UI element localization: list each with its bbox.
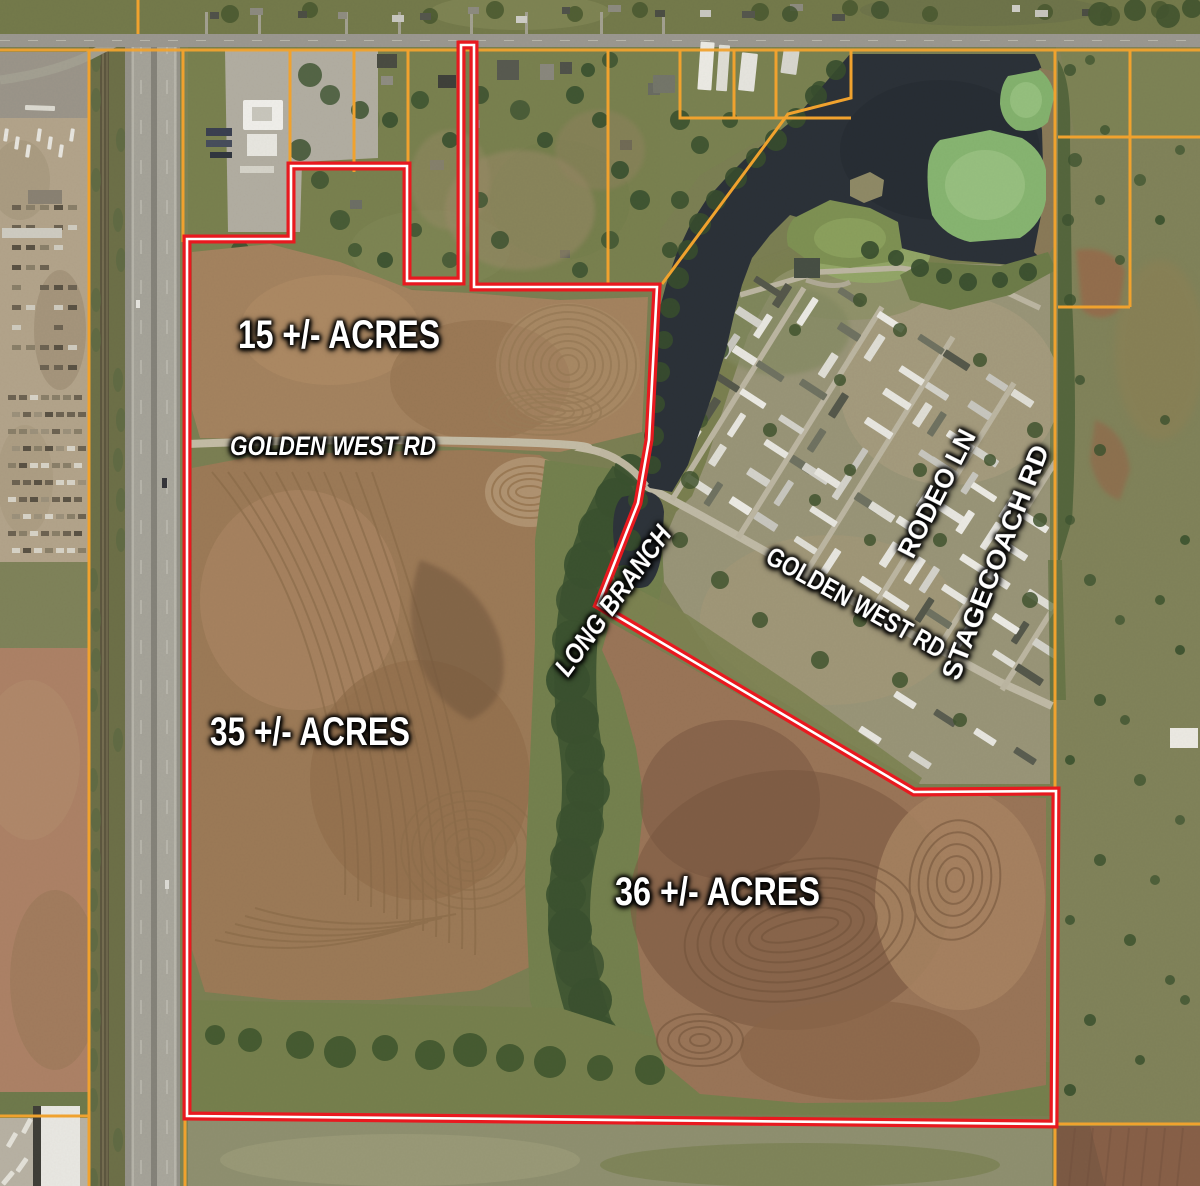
svg-text:GOLDEN WEST RD: GOLDEN WEST RD (230, 431, 436, 461)
svg-text:36 +/- ACRES: 36 +/- ACRES (615, 870, 820, 914)
svg-text:15 +/- ACRES: 15 +/- ACRES (238, 313, 440, 357)
svg-text:35 +/- ACRES: 35 +/- ACRES (210, 710, 410, 754)
